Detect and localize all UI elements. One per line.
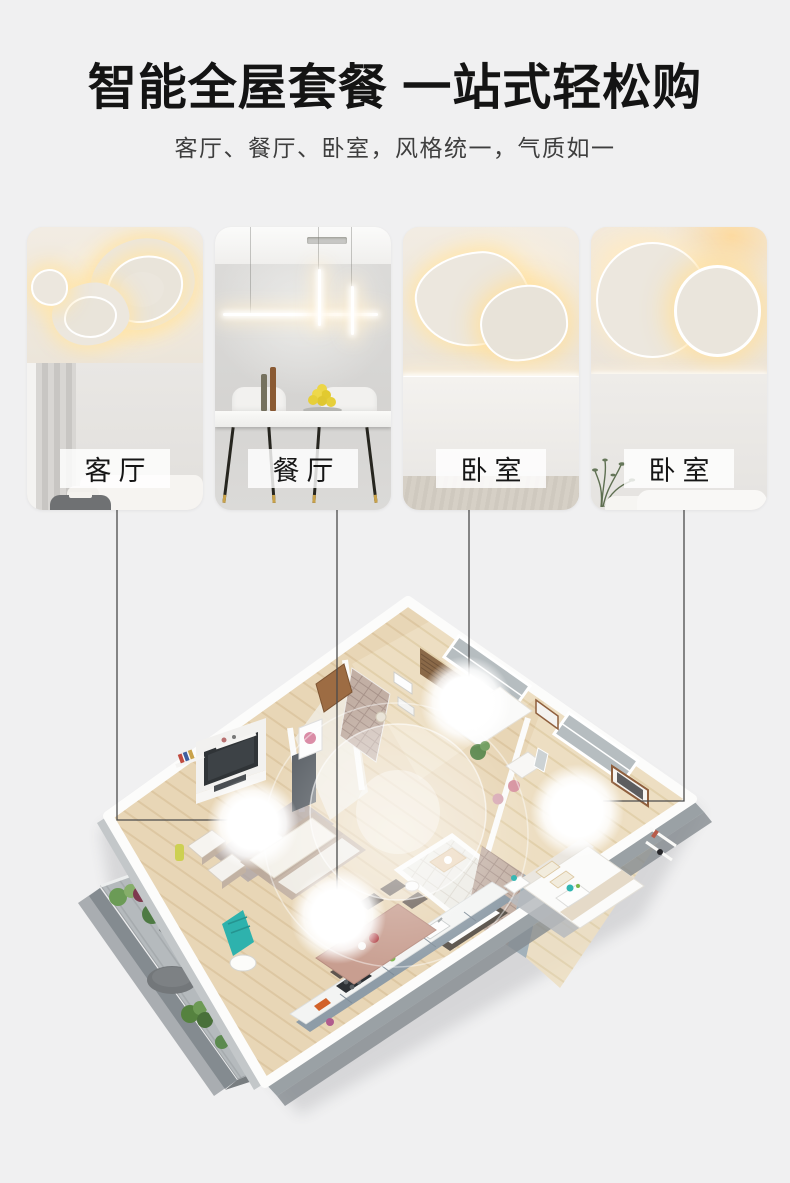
card-living-room[interactable]: 客厅 — [27, 227, 203, 510]
vertical-pendant-light-icon — [318, 269, 321, 326]
apartment-3d — [78, 510, 712, 1115]
ceiling — [403, 227, 579, 377]
dining-table-top — [215, 411, 391, 427]
page-subtitle: 客厅、餐厅、卧室，风格统一，气质如一 — [0, 129, 790, 163]
pendant-wire — [351, 227, 352, 286]
ceiling — [27, 227, 203, 363]
wine-bottle — [261, 374, 267, 411]
room-label-text: 餐厅 — [273, 449, 341, 488]
round-panel-light-small-icon — [674, 265, 761, 356]
side-table — [230, 955, 256, 971]
floorplan-3d-image — [0, 0, 790, 1183]
room-label-text: 卧室 — [461, 449, 529, 488]
room-label-bedroom-2: 卧室 — [624, 449, 734, 488]
room-label-text: 卧室 — [649, 449, 717, 488]
floor-lamp — [175, 844, 184, 861]
page-title: 智能全屋套餐 一站式轻松购 — [0, 0, 790, 116]
bedroom-2-light-sphere-icon — [420, 656, 512, 748]
card-bedroom-1[interactable]: 卧室 — [403, 227, 579, 510]
room-label-text: 客厅 — [85, 449, 153, 488]
vertical-pendant-light-icon — [351, 286, 354, 334]
room-label-bedroom-1: 卧室 — [436, 449, 546, 488]
card-bedroom-2[interactable]: 卧室 — [591, 227, 767, 510]
hero-header: 智能全屋套餐 一站式轻松购 客厅、餐厅、卧室，风格统一，气质如一 — [0, 0, 790, 163]
pendant-wire — [250, 227, 251, 313]
bedroom-1-light-sphere-icon — [530, 764, 624, 858]
ceiling — [591, 227, 767, 374]
card-dining-room[interactable]: 餐厅 — [215, 227, 391, 510]
books-on-table — [69, 492, 92, 498]
pendant-wire — [318, 227, 319, 269]
room-cards-row: 客厅 餐厅 — [27, 227, 767, 510]
dining-room-light-sphere-icon — [290, 868, 386, 964]
wine-bottle — [270, 367, 276, 411]
ceiling-vent — [307, 237, 347, 244]
ceiling — [215, 227, 391, 264]
linear-pendant-light-icon — [223, 313, 378, 316]
flower — [326, 1018, 334, 1026]
dining-chair — [232, 387, 287, 414]
living-room-light-sphere-icon — [207, 778, 299, 870]
bed — [637, 490, 767, 510]
room-label-dining: 餐厅 — [248, 449, 358, 488]
room-label-living: 客厅 — [60, 449, 170, 488]
